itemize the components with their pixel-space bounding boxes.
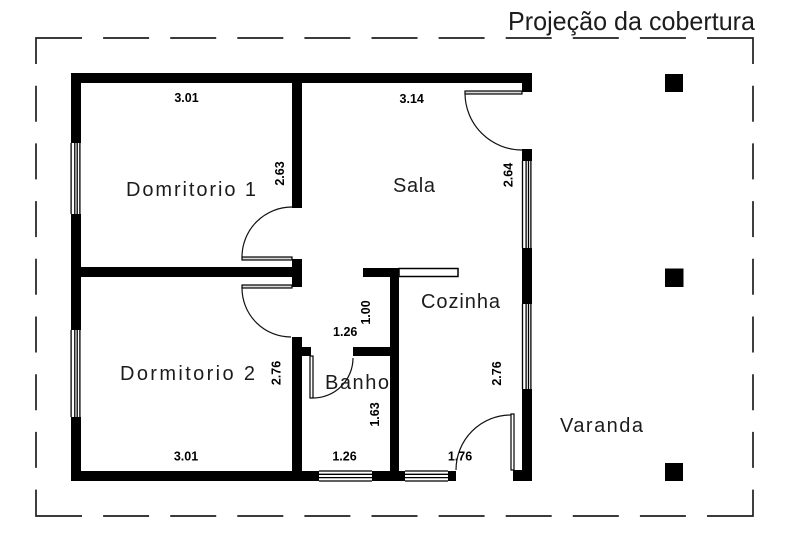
svg-text:2.76: 2.76	[270, 361, 284, 385]
svg-text:Varanda: Varanda	[560, 415, 644, 437]
svg-text:Domritorio 1: Domritorio 1	[126, 179, 256, 201]
svg-text:1.76: 1.76	[448, 449, 472, 463]
svg-text:Banho: Banho	[325, 372, 389, 394]
svg-text:Projeção da cobertura: Projeção da cobertura	[508, 6, 756, 36]
svg-text:2.63: 2.63	[273, 161, 287, 185]
svg-text:3.01: 3.01	[174, 449, 198, 463]
svg-text:2.64: 2.64	[501, 163, 515, 187]
svg-text:1.26: 1.26	[332, 449, 356, 463]
svg-text:3.14: 3.14	[400, 92, 424, 106]
svg-text:Cozinha: Cozinha	[421, 291, 501, 313]
svg-text:Sala: Sala	[393, 175, 436, 197]
svg-text:1.63: 1.63	[368, 402, 382, 426]
svg-text:1.26: 1.26	[333, 325, 357, 339]
svg-text:1.00: 1.00	[359, 300, 373, 324]
svg-text:2.76: 2.76	[490, 361, 504, 385]
svg-text:3.01: 3.01	[174, 91, 198, 105]
